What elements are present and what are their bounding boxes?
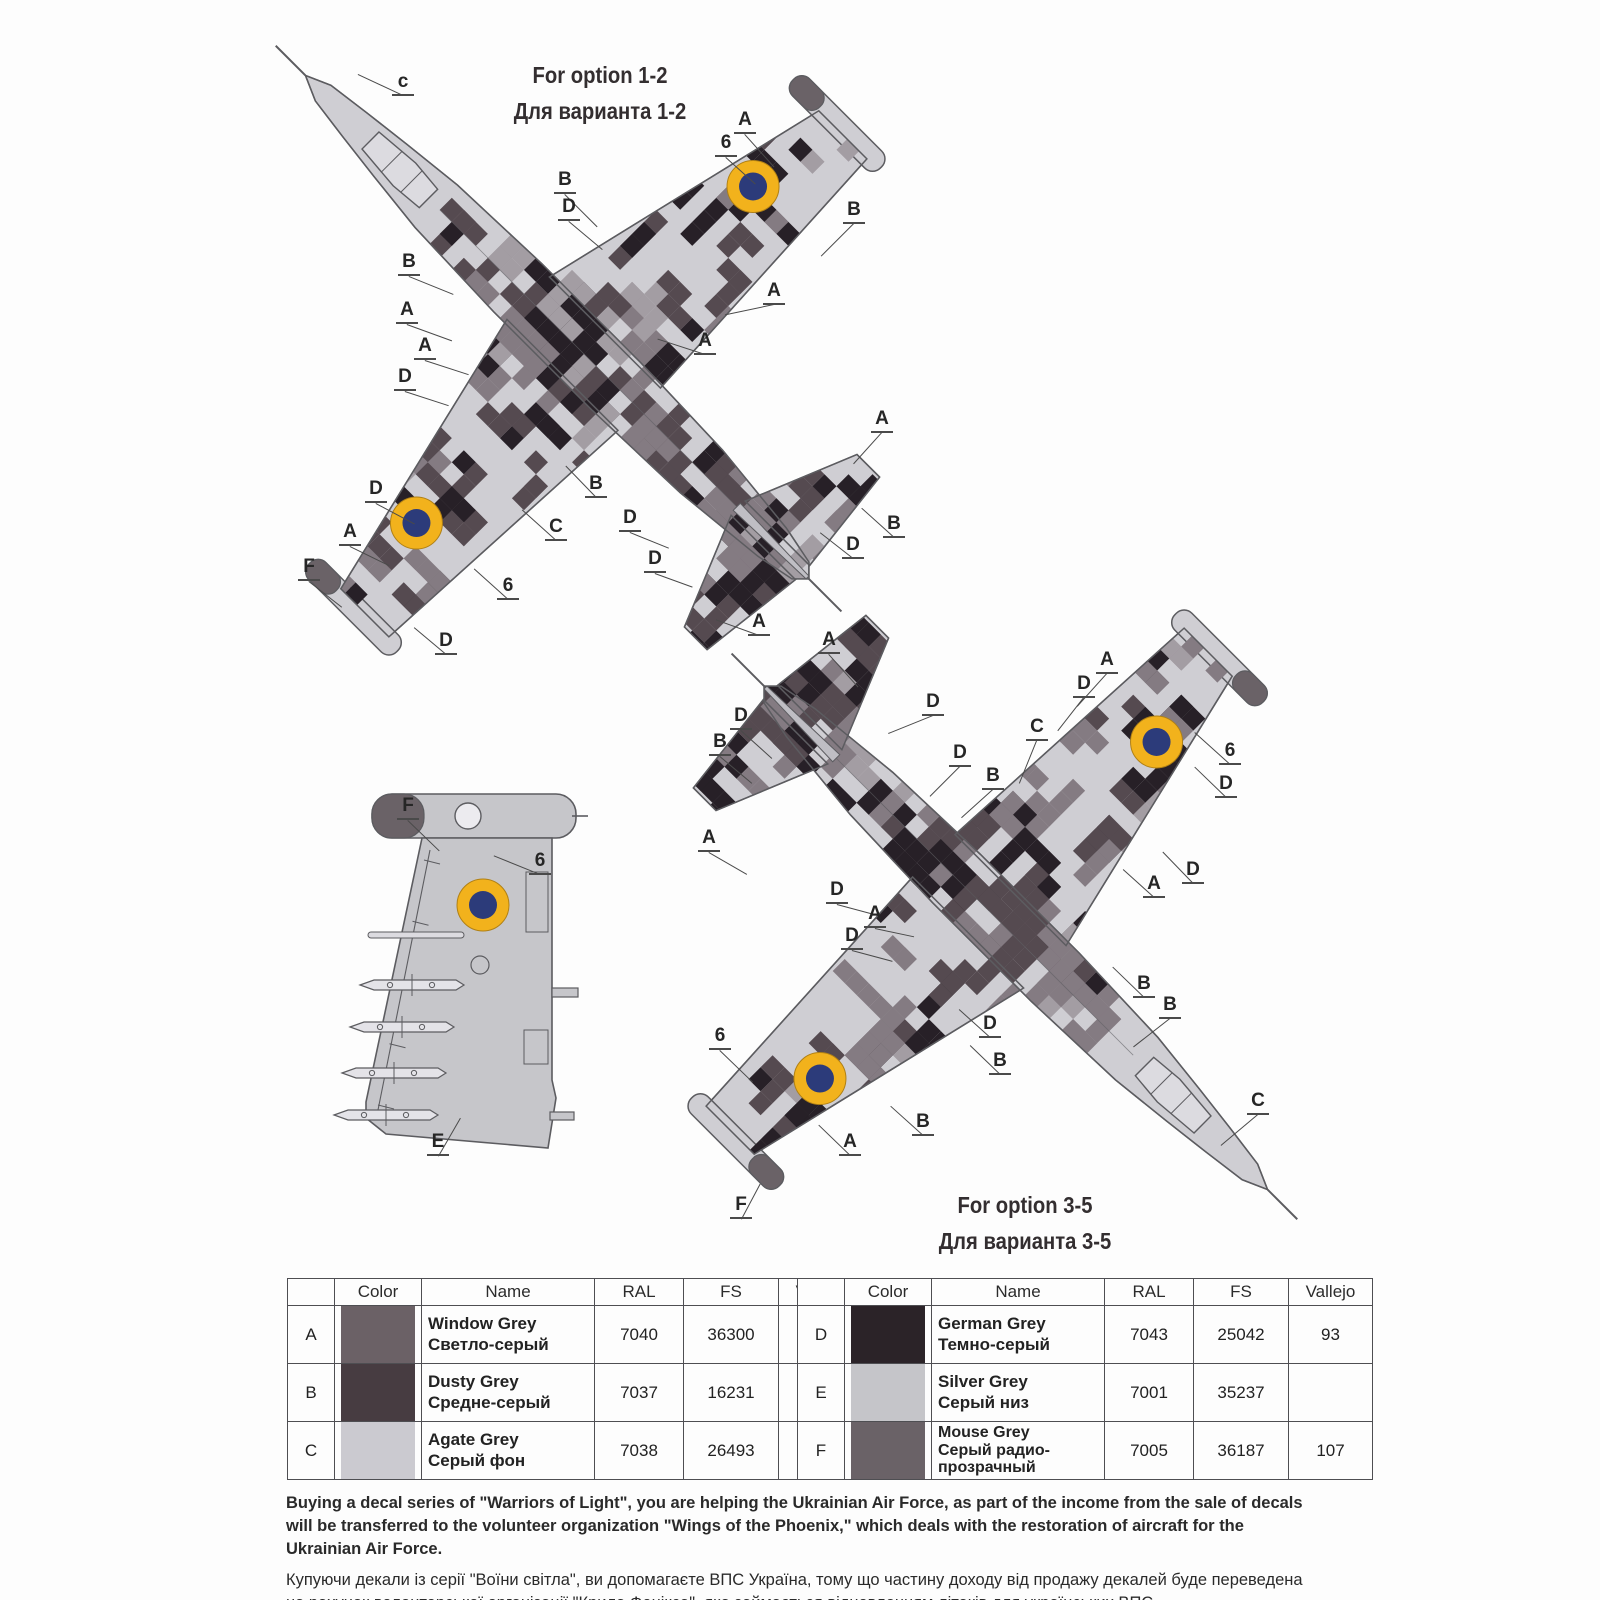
ral-value: 7038 [595, 1422, 684, 1480]
column-header [798, 1279, 845, 1306]
color-swatch [341, 1306, 415, 1363]
vallejo-value: 107 [1289, 1422, 1373, 1480]
fs-value: 26493 [684, 1422, 779, 1480]
vallejo-value [1289, 1364, 1373, 1422]
color-letter: F [798, 1422, 845, 1480]
ral-value: 7043 [1105, 1306, 1194, 1364]
table-row: AWindow GreyСветло-серый704036300 [288, 1306, 863, 1364]
color-name-en: Silver Grey [938, 1372, 1098, 1392]
table-header-row: ColorNameRALFSVallejo [288, 1279, 863, 1306]
color-swatch [851, 1306, 925, 1363]
column-header: RAL [1105, 1279, 1194, 1306]
color-name-ru: Светло-серый [428, 1335, 588, 1355]
color-name-ru: Серый радио-прозрачный [938, 1442, 1098, 1478]
table-row: CAgate GreyСерый фон703826493 [288, 1422, 863, 1480]
color-swatch [851, 1422, 925, 1479]
color-name-ru: Серый низ [938, 1393, 1098, 1413]
column-header: Vallejo [1289, 1279, 1373, 1306]
column-header: RAL [595, 1279, 684, 1306]
column-header: Name [932, 1279, 1105, 1306]
color-letter: E [798, 1364, 845, 1422]
decal-instruction-sheet: For option 1-2 Для варианта 1-2 For opti… [0, 0, 1600, 1600]
fs-value: 36300 [684, 1306, 779, 1364]
ral-value: 7005 [1105, 1422, 1194, 1480]
aircraft-top-view-option-3-5 [650, 575, 1350, 1275]
column-header: Color [335, 1279, 422, 1306]
ral-value: 7001 [1105, 1364, 1194, 1422]
footer-note: Buying a decal series of "Warriors of Li… [286, 1492, 1308, 1600]
ral-value: 7037 [595, 1364, 684, 1422]
option-3-5-label-en: For option 3-5 [906, 1188, 1144, 1224]
color-table-right: ColorNameRALFSVallejoDGerman GreyТемно-с… [797, 1278, 1373, 1480]
color-name-en: Window Grey [428, 1314, 588, 1334]
color-letter: B [288, 1364, 335, 1422]
footer-note-english: Buying a decal series of "Warriors of Li… [286, 1492, 1308, 1560]
fs-value: 35237 [1194, 1364, 1289, 1422]
column-header: FS [1194, 1279, 1289, 1306]
column-header: Color [845, 1279, 932, 1306]
color-name-ru: Серый фон [428, 1451, 588, 1471]
option-3-5-label: For option 3-5 Для варианта 3-5 [906, 1188, 1144, 1259]
vallejo-value: 93 [1289, 1306, 1373, 1364]
table-header-row: ColorNameRALFSVallejo [798, 1279, 1373, 1306]
color-name-en: Dusty Grey [428, 1372, 588, 1392]
ukrainian-roundel [457, 879, 509, 931]
column-header: Name [422, 1279, 595, 1306]
column-header [288, 1279, 335, 1306]
column-header: FS [684, 1279, 779, 1306]
table-row: BDusty GreyСредне-серый703716231155 [288, 1364, 863, 1422]
color-name-ru: Средне-серый [428, 1393, 588, 1413]
wing-underside-view [320, 780, 600, 1180]
table-row: DGerman GreyТемно-серый70432504293 [798, 1306, 1373, 1364]
color-name-en: Mouse Grey [938, 1424, 1098, 1442]
fs-value: 16231 [684, 1364, 779, 1422]
color-letter: C [288, 1422, 335, 1480]
table-row: FMouse GreyСерый радио-прозрачный7005361… [798, 1422, 1373, 1480]
ral-value: 7040 [595, 1306, 684, 1364]
option-3-5-label-ru: Для варианта 3-5 [906, 1224, 1144, 1260]
footer-note-ukrainian: Купуючи декали із серії "Воїни світла", … [286, 1569, 1308, 1600]
color-letter: A [288, 1306, 335, 1364]
color-swatch [851, 1364, 925, 1421]
color-swatch [341, 1364, 415, 1421]
color-letter: D [798, 1306, 845, 1364]
color-swatch [341, 1422, 415, 1479]
table-row: ESilver GreyСерый низ700135237 [798, 1364, 1373, 1422]
fs-value: 25042 [1194, 1306, 1289, 1364]
fs-value: 36187 [1194, 1422, 1289, 1480]
color-name-en: German Grey [938, 1314, 1098, 1334]
color-name-en: Agate Grey [428, 1430, 588, 1450]
color-name-ru: Темно-серый [938, 1335, 1098, 1355]
color-table-left: ColorNameRALFSVallejoAWindow GreyСветло-… [287, 1278, 863, 1480]
